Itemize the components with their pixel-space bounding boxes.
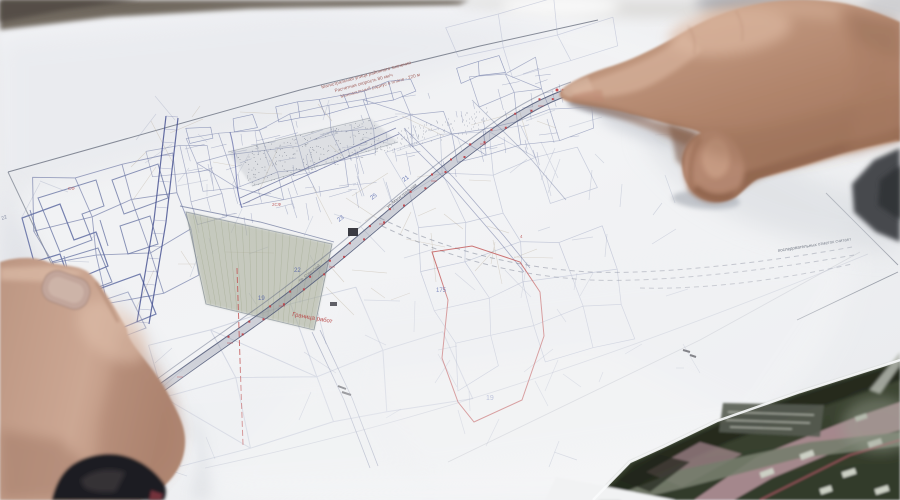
svg-text:2СФ: 2СФ [272,202,282,207]
svg-text:22: 22 [294,268,301,274]
svg-text:19: 19 [258,296,265,302]
svg-text:СФ: СФ [68,186,75,191]
